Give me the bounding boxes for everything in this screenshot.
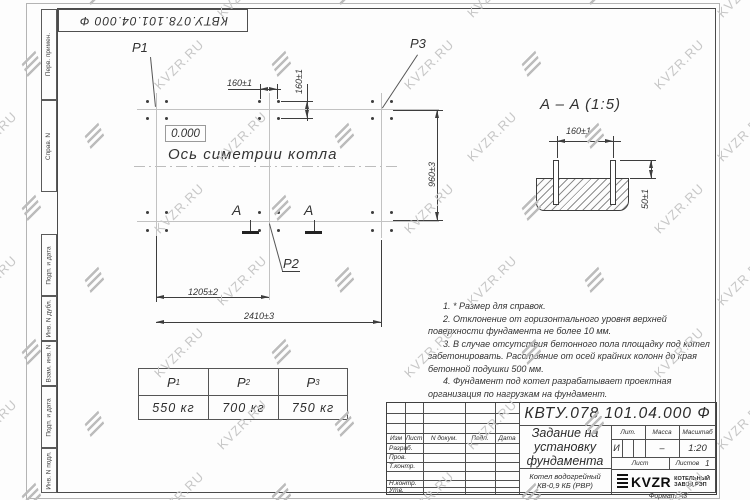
anchor-bolt-dot bbox=[258, 229, 261, 232]
signature-label-nkontr: Н.контр. bbox=[389, 480, 423, 487]
anchor-bolt-dot bbox=[277, 100, 280, 103]
revision-header-podp: Подп. bbox=[465, 433, 495, 443]
company-name: КОТЕЛЬНЫЙ ЗАВОД РЭП bbox=[674, 476, 710, 488]
section-view-title: A – A (1:5) bbox=[540, 96, 621, 113]
rotated-designation-stamp: КВТУ.078.101.04.000 Ф bbox=[58, 9, 248, 32]
margin-cell-podp-data-2: Подп. и дата bbox=[41, 386, 57, 448]
line bbox=[393, 220, 443, 221]
line bbox=[137, 221, 439, 222]
title-block: Изм Лист N докум. Подп. Дата Разраб. Про… bbox=[386, 402, 717, 495]
signature-label-tkontr: Т.контр. bbox=[389, 462, 423, 471]
anchor-bolt-dot bbox=[390, 117, 393, 120]
sheets-value: 1 bbox=[705, 459, 709, 468]
anchor-bolt-dot bbox=[258, 100, 261, 103]
sheets-label: Листов bbox=[675, 460, 699, 467]
line bbox=[557, 136, 558, 158]
line bbox=[156, 236, 157, 302]
line bbox=[134, 166, 400, 167]
anchor-bolt-left bbox=[553, 160, 559, 205]
line bbox=[381, 240, 382, 327]
section-letter-left: A bbox=[232, 202, 241, 218]
dim-section-bolt-spacing: 160±1 bbox=[566, 126, 591, 136]
scale-value: 1:20 bbox=[679, 439, 716, 457]
signature-label-utv: Утв. bbox=[389, 487, 423, 494]
dim-section-bolt-protrusion: 50±1 bbox=[640, 173, 650, 209]
sheet-label: Лист bbox=[611, 457, 669, 469]
anchor-bolt-dot bbox=[371, 211, 374, 214]
line bbox=[381, 93, 382, 238]
drawing-sheet: КВТУ.078.101.04.000 Ф Перв. примен. Спра… bbox=[0, 0, 750, 500]
margin-cell-inv-podl: Инв. N подл. bbox=[41, 448, 57, 493]
elevation-mark: 0.000 bbox=[165, 125, 206, 142]
lit-label: Лит. bbox=[611, 425, 645, 439]
margin-cell-perv-primen: Перв. примен. bbox=[41, 9, 57, 100]
anchor-bolt-dot bbox=[258, 117, 261, 120]
anchor-bolt-dot bbox=[146, 117, 149, 120]
note-4: 4. Фундамент под котел разрабатывает про… bbox=[428, 375, 717, 400]
load-table-header-p1: P1 bbox=[139, 369, 209, 396]
dim-bolt-spacing-horizontal: 160±1 bbox=[227, 78, 252, 88]
line bbox=[277, 84, 278, 99]
anchor-bolt-dot bbox=[371, 229, 374, 232]
anchor-bolt-dot bbox=[390, 211, 393, 214]
load-table-header-p2: P2 bbox=[209, 369, 279, 396]
line bbox=[260, 84, 261, 99]
sheets-cell: Листов 1 bbox=[669, 457, 716, 469]
margin-cell-vzam-inv: Взам. инв. N bbox=[41, 341, 57, 386]
load-label-p2: P2 bbox=[283, 256, 299, 271]
line bbox=[156, 322, 381, 323]
line bbox=[613, 136, 614, 158]
title-block-designation: КВТУ.078.101.04.000 Ф bbox=[519, 403, 716, 425]
note-1: 1. * Размер для справок. bbox=[428, 300, 717, 313]
company-logo-text: KVZR bbox=[631, 474, 671, 490]
load-label-p3: P3 bbox=[410, 36, 426, 51]
format-label: Формат А3 bbox=[620, 493, 716, 500]
lit-value: И bbox=[611, 439, 622, 457]
dim-foundation-width: 960±3 bbox=[427, 143, 437, 187]
load-label-p1: P1 bbox=[132, 40, 148, 55]
line bbox=[393, 110, 443, 111]
anchor-bolt-dot bbox=[390, 100, 393, 103]
product-name: Котел водогрейный КВ-0,9 КБ (РВР) bbox=[519, 468, 611, 494]
revision-header-list: Лист bbox=[405, 433, 423, 443]
anchor-bolt-dot bbox=[371, 100, 374, 103]
anchor-bolt-dot bbox=[146, 211, 149, 214]
anchor-bolt-dot bbox=[146, 229, 149, 232]
revision-header-izm: Изм bbox=[387, 433, 405, 443]
line bbox=[281, 118, 313, 119]
signature-label-prov: Пров. bbox=[389, 453, 423, 462]
revision-header-data: Дата bbox=[495, 433, 519, 443]
load-table-header-p3: P3 bbox=[279, 369, 347, 396]
watermark-text: KVZR.RU bbox=[0, 109, 20, 165]
anchor-bolt-dot bbox=[165, 100, 168, 103]
revision-header-ndocum: N докум. bbox=[423, 433, 465, 443]
line bbox=[269, 93, 270, 300]
anchor-bolt-dot bbox=[165, 229, 168, 232]
load-table-value-p2: 700 кг bbox=[209, 396, 279, 419]
watermark-text: KVZR.RU bbox=[0, 397, 20, 453]
anchor-bolt-dot bbox=[371, 117, 374, 120]
mass-label: Масса bbox=[645, 425, 679, 439]
dim-axis-to-center: 1205±2 bbox=[188, 287, 218, 297]
watermark-text: KVZR.RU bbox=[0, 0, 20, 20]
dim-overall-length: 2410±3 bbox=[244, 311, 274, 321]
anchor-bolt-dot bbox=[277, 117, 280, 120]
rotated-designation-text: КВТУ.078.101.04.000 Ф bbox=[79, 14, 228, 28]
kvzr-emblem-icon bbox=[617, 474, 628, 489]
line bbox=[156, 297, 269, 298]
load-table: P1 P2 P3 550 кг 700 кг 750 кг bbox=[138, 368, 348, 420]
scale-label: Масштаб bbox=[679, 425, 716, 439]
company-cell: KVZR КОТЕЛЬНЫЙ ЗАВОД РЭП bbox=[611, 469, 716, 494]
mass-value: – bbox=[645, 439, 679, 457]
anchor-bolt-dot bbox=[390, 229, 393, 232]
watermark-text: KVZR.RU bbox=[0, 253, 20, 309]
line bbox=[437, 110, 438, 220]
line bbox=[156, 93, 157, 238]
margin-cell-podp-data-1: Подп. и дата bbox=[41, 234, 57, 296]
anchor-bolt-dot bbox=[146, 100, 149, 103]
section-letter-right: A bbox=[304, 202, 313, 218]
anchor-bolt-dot bbox=[277, 229, 280, 232]
line bbox=[281, 101, 313, 102]
technical-notes: 1. * Размер для справок. 2. Отклонение о… bbox=[428, 300, 717, 400]
anchor-bolt-dot bbox=[165, 211, 168, 214]
margin-cell-sprav-n: Справ. N bbox=[41, 100, 57, 192]
line bbox=[314, 220, 315, 231]
anchor-bolt-right bbox=[610, 160, 616, 205]
line bbox=[305, 231, 322, 234]
margin-cell-inv-dubl: Инв. N дубл. bbox=[41, 296, 57, 341]
note-2: 2. Отклонение от горизонтального уровня … bbox=[428, 313, 717, 338]
anchor-bolt-dot bbox=[277, 211, 280, 214]
dim-bolt-spacing-vertical: 160±1 bbox=[294, 60, 304, 94]
line bbox=[250, 220, 251, 231]
symmetry-axis-label: Ось симетрии котла bbox=[168, 146, 337, 163]
line bbox=[242, 231, 259, 234]
anchor-bolt-dot bbox=[258, 211, 261, 214]
anchor-bolt-dot bbox=[165, 117, 168, 120]
note-3: 3. В случае отсутствия бетонного пола пл… bbox=[428, 338, 717, 376]
signature-label-razrab: Разраб. bbox=[389, 443, 423, 453]
load-table-value-p1: 550 кг bbox=[139, 396, 209, 419]
line bbox=[282, 271, 300, 272]
document-title: Задание на установку фундамента bbox=[519, 425, 611, 468]
load-table-value-p3: 750 кг bbox=[279, 396, 347, 419]
